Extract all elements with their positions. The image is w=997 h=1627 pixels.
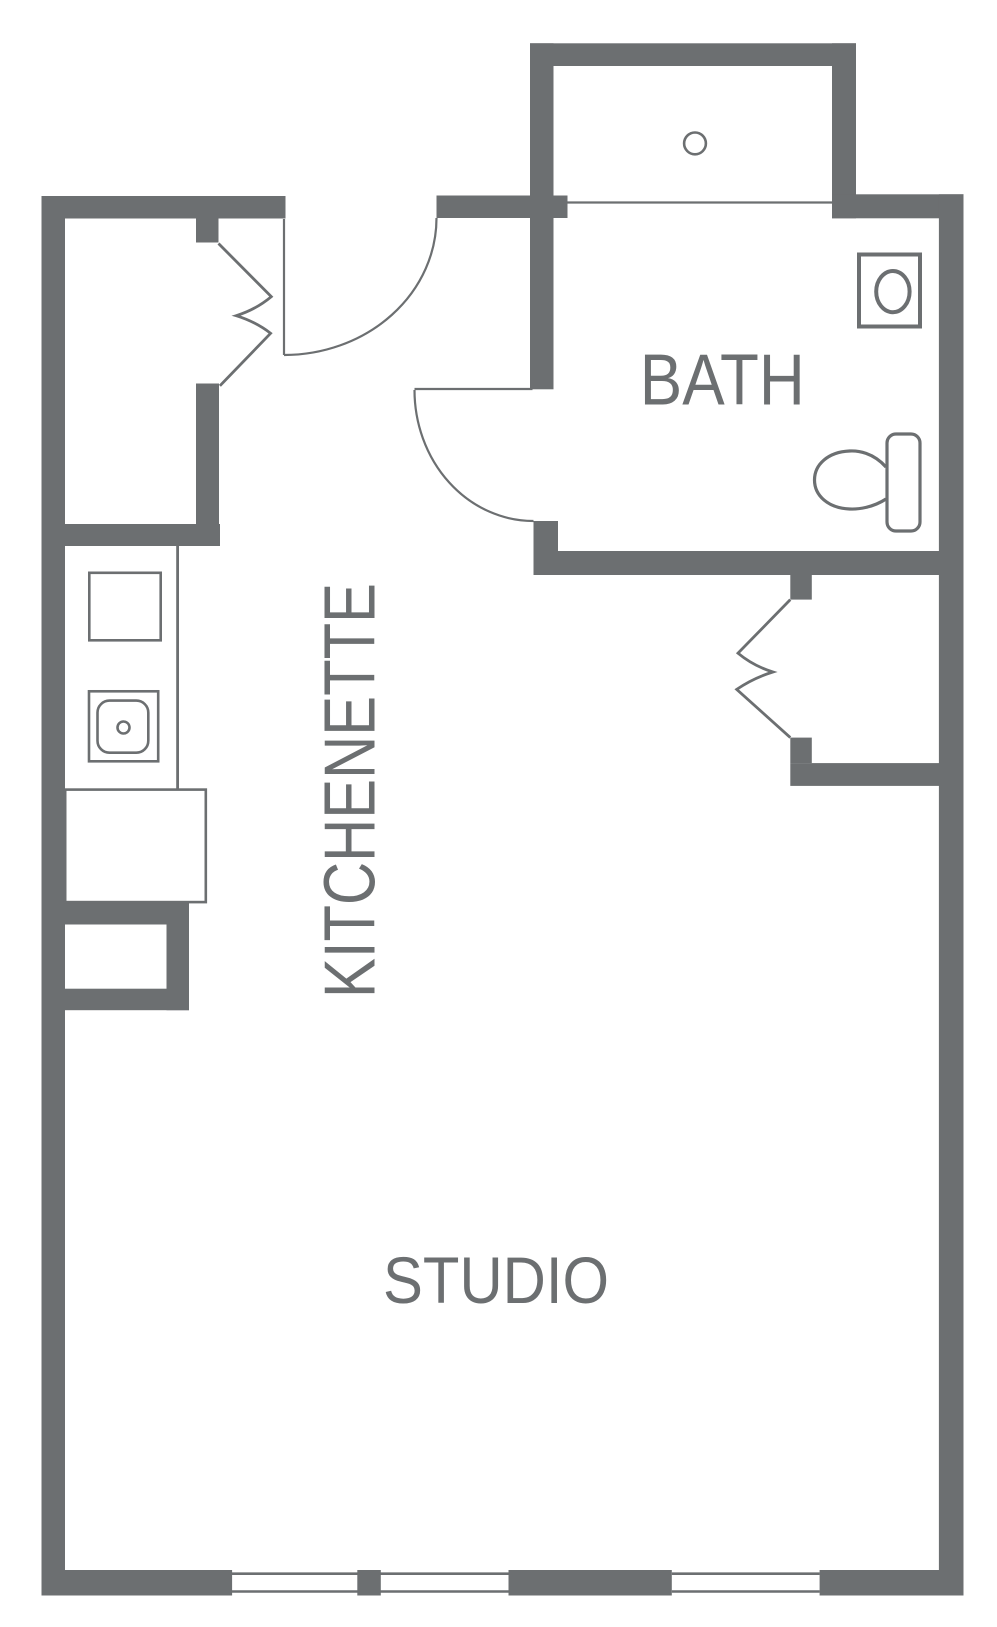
- svg-text:BATH: BATH: [640, 340, 805, 421]
- svg-text:KITCHENETTE: KITCHENETTE: [311, 583, 391, 998]
- svg-text:STUDIO: STUDIO: [383, 1244, 609, 1317]
